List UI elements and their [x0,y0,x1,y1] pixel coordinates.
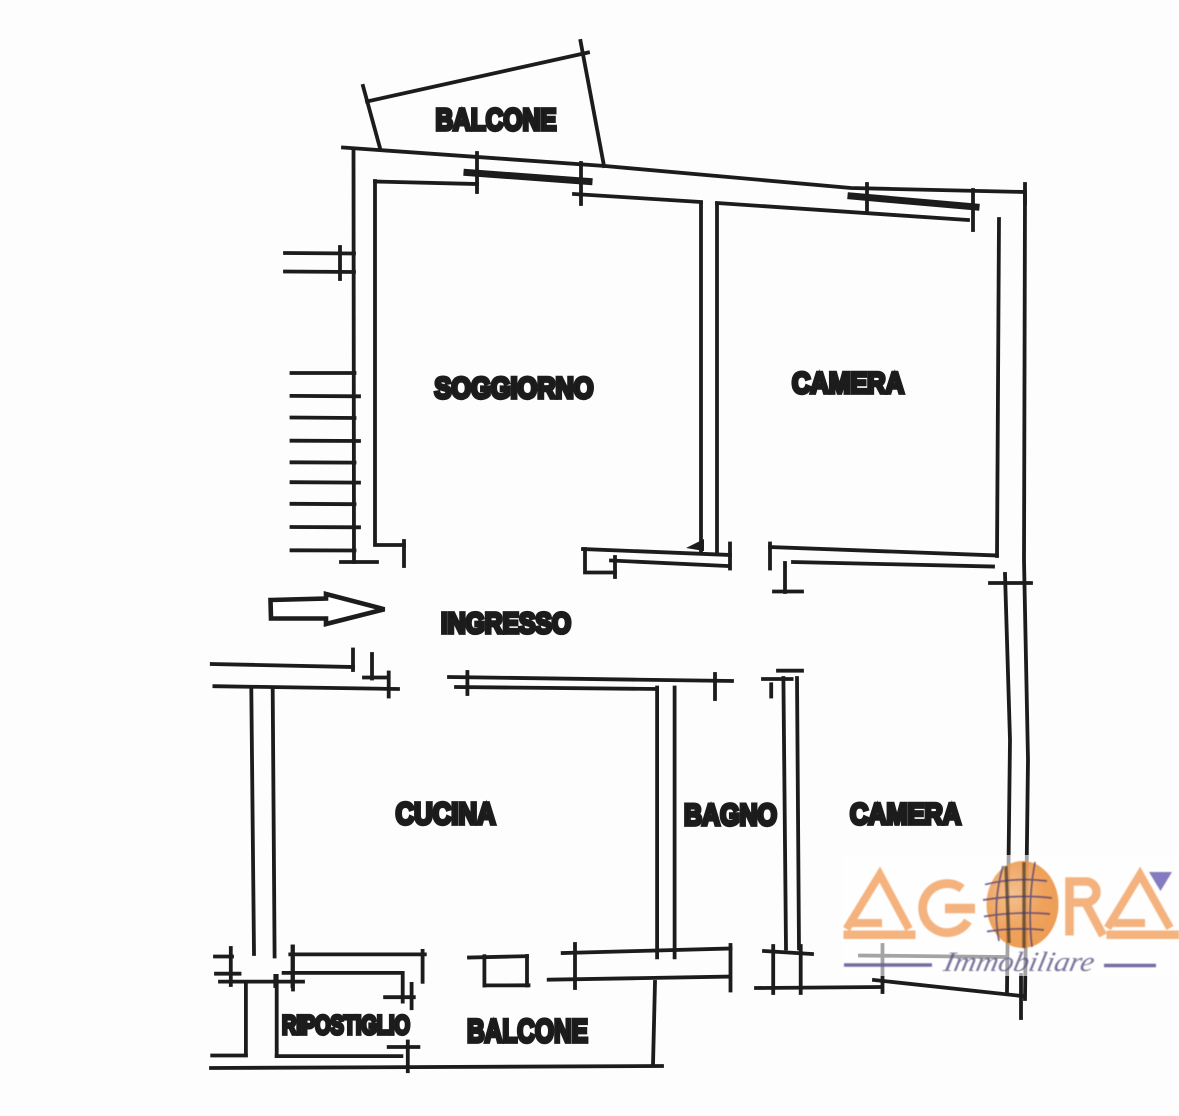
svg-text:BALCONE: BALCONE [467,1013,588,1049]
svg-text:RIPOSTIGLIO: RIPOSTIGLIO [282,1010,410,1040]
svg-text:BALCONE: BALCONE [436,103,557,137]
svg-text:INGRESSO: INGRESSO [441,608,571,640]
svg-text:BAGNO: BAGNO [684,799,777,832]
svg-text:Immobiliare: Immobiliare [940,947,1098,978]
svg-text:CAMERA: CAMERA [850,798,961,831]
svg-text:CUCINA: CUCINA [396,797,496,831]
svg-text:SOGGIORNO: SOGGIORNO [435,372,594,405]
svg-text:CAMERA: CAMERA [792,367,904,400]
